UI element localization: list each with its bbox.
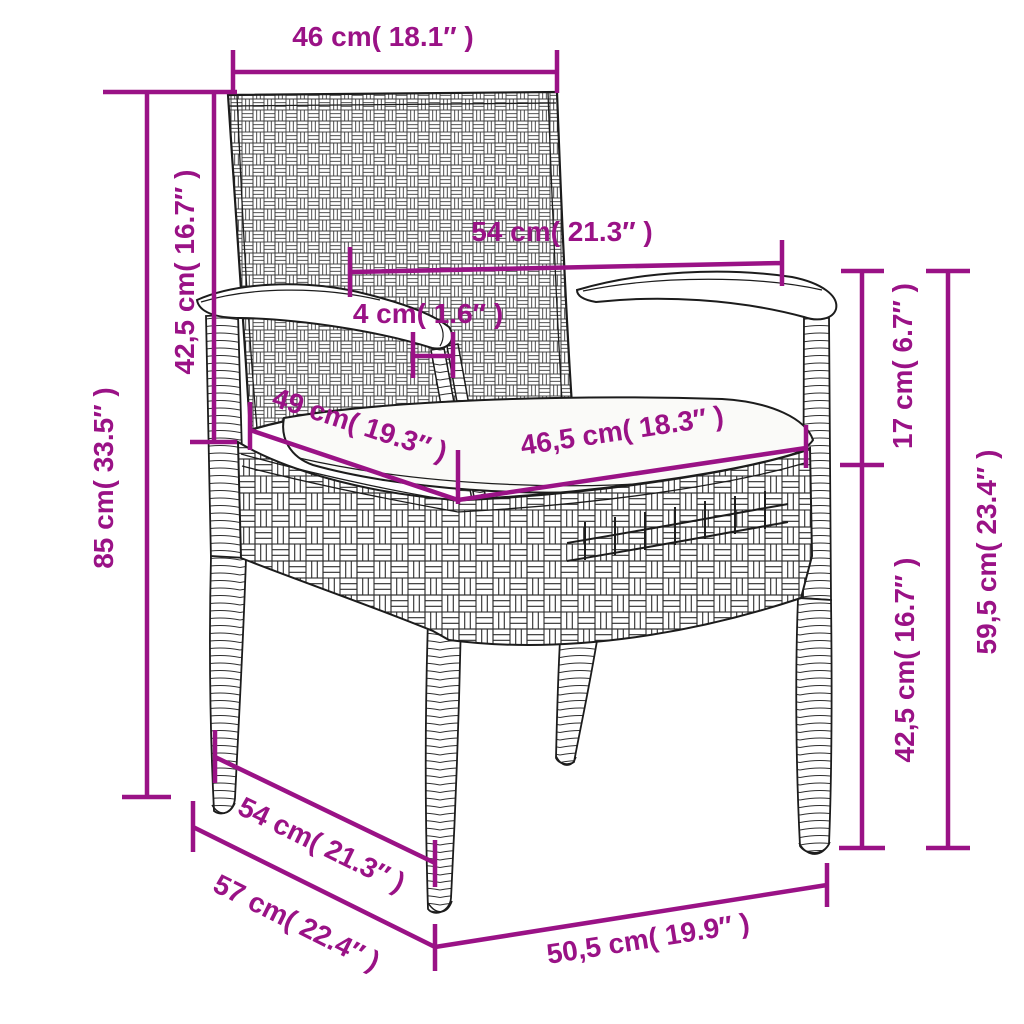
dim-total-height-label: 85 cm( 33.5″ ): [88, 387, 119, 569]
dim-armrest-height-label: 59,5 cm( 23.4″ ): [971, 450, 1002, 655]
chair-front-left-leg: [426, 619, 461, 913]
dim-backrest-height-label: 42,5 cm( 16.7″ ): [169, 170, 200, 375]
dim-front-width-label: 50,5 cm( 19.9″ ): [544, 907, 751, 970]
dim-armrest-above-seat-line: [840, 271, 884, 465]
dim-armrest-thickness-label: 4 cm( 1.6″ ): [353, 298, 503, 329]
dim-seat-height-label: 42,5 cm( 16.7″ ): [889, 558, 920, 763]
dim-back-width-line: [233, 50, 557, 93]
dim-seat-height-line: [839, 465, 885, 848]
chair-backrest-panel: [228, 92, 573, 430]
chair-back-right-leg: [796, 598, 831, 853]
dim-armrest-span-label: 54 cm( 21.3″ ): [471, 216, 653, 247]
dim-back-width-label: 46 cm( 18.1″ ): [292, 21, 474, 52]
dim-armrest-above-seat-label: 17 cm( 6.7″ ): [887, 283, 918, 449]
chair-dimension-drawing: 46 cm( 18.1″ ) 42,5 cm( 16.7″ ) 85 cm( 3…: [0, 0, 1024, 1024]
dim-total-height-line: [122, 92, 171, 797]
dimension-diagram: 46 cm( 18.1″ ) 42,5 cm( 16.7″ ) 85 cm( 3…: [0, 0, 1024, 1024]
dim-armrest-height-line: [926, 271, 970, 848]
dim-base-depth-outer-label: 57 cm( 22.4″ ): [209, 868, 385, 977]
